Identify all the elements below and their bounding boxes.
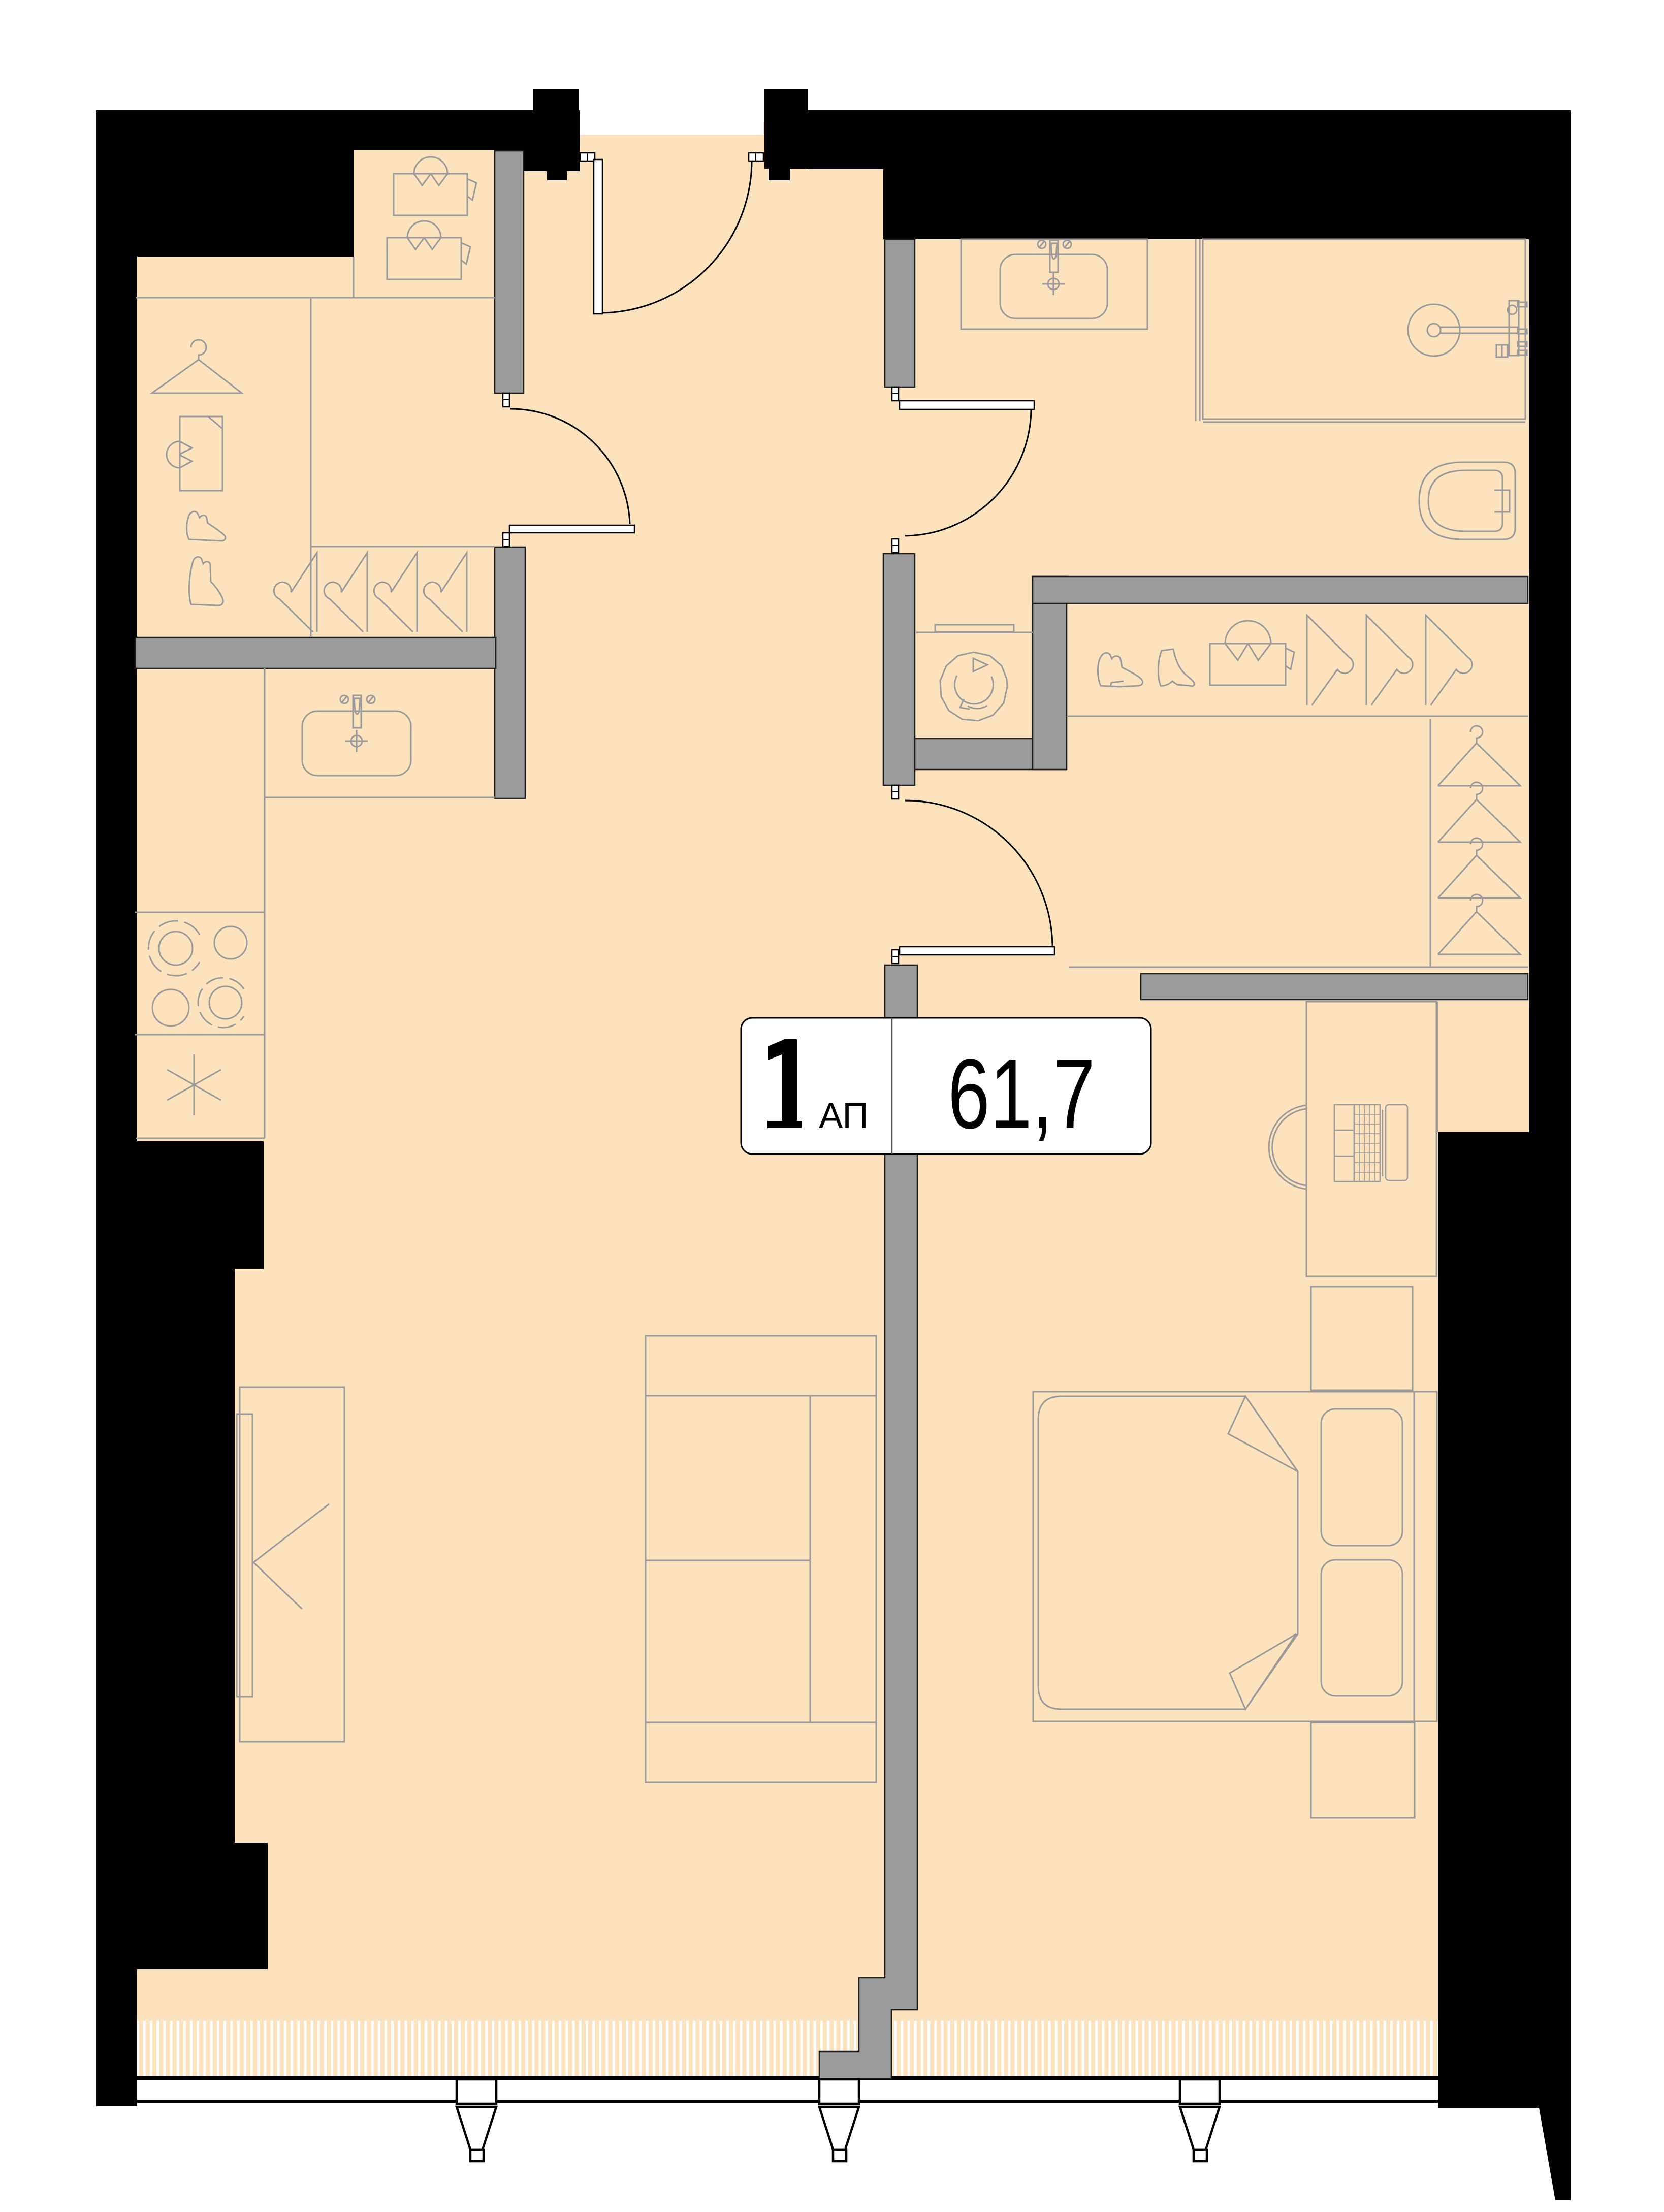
svg-text:61,7: 61,7	[948, 1038, 1095, 1149]
svg-text:АП: АП	[819, 1096, 869, 1136]
